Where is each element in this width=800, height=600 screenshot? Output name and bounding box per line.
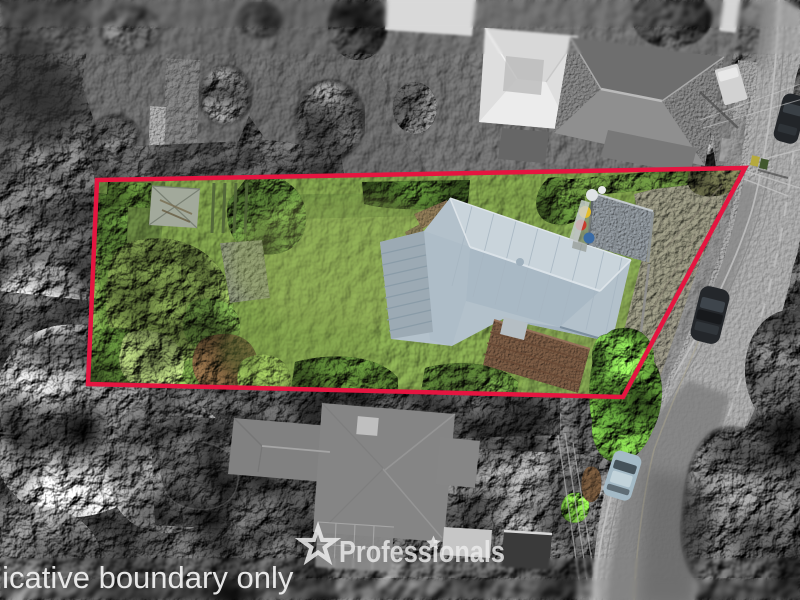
svg-text:Indicative boundary only: Indicative boundary only	[0, 560, 294, 595]
svg-text:Professionals: Professionals	[339, 535, 505, 569]
